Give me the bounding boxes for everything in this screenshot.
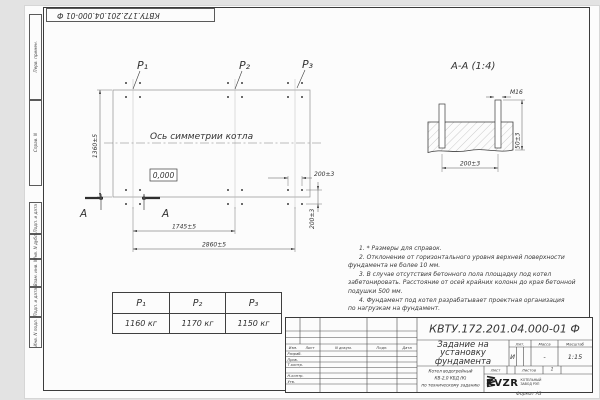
load-table-value: 1160 кг [113,313,169,333]
note-line: фундамента не более 10 мм. [348,262,590,271]
extension-lines [97,90,112,197]
load-table-header: P₂ [169,293,225,313]
drawing-sheet-page: Перв. примен. Справ. N Подп. и дата Инв.… [0,0,600,400]
section-letter-right: А [161,208,169,220]
load-table-header: P₁ [113,293,169,313]
col-header-doc: N докум. [335,346,352,350]
load-point-leaders [133,70,305,89]
p3-label: P₃ [302,58,314,71]
note-line: по нагрузкам на фундамент. [348,305,590,314]
logo-subtext: КОТЕЛЬНЫЙ ЗАВОД РЭП [520,379,541,387]
anchor-bolt-left [439,104,445,148]
dim-2860: 2860±5 [202,242,226,249]
col-header-list: Лист [305,346,314,350]
elevation-mark: 0,000 [153,171,175,180]
col-header-izm: Изм. [289,346,297,350]
load-table-value: 1170 кг [169,313,225,333]
sheets-label: Листов [522,368,536,373]
role-razrab: Разраб. [288,352,302,356]
anchor-bolt-right [495,100,501,148]
load-table-header: P₃ [225,293,281,313]
plan-view: P₁ P₂ P₃ Ось симметрии котла 0,000 1360±… [79,58,334,252]
axis-of-symmetry-label: Ось симметрии котла [150,132,253,142]
kvzr-spring-icon [486,375,496,388]
mass-value: - [543,353,545,361]
m16-label: M16 [510,89,523,96]
dim-1360: 1360±5 [92,134,99,158]
load-table: P₁ P₂ P₃ 1160 кг 1170 кг 1150 кг [112,292,282,334]
format-label: Формат А3 [516,392,542,397]
role-prov: Пров. [288,358,298,362]
role-tkontr: Т.контр. [288,363,304,367]
section-view-a-a: А-А (1:4) M16 50±3 200±3 [428,61,525,172]
sheets-value: 1 [551,368,554,373]
scale-value: 1:15 [568,353,583,361]
product-line: Котел водогрейный [429,369,473,374]
column-axis-lines [133,79,295,209]
anchor-bolt-dots [125,82,303,205]
note-line: 3. В случае отсутствия бетонного пола пл… [348,271,590,280]
logo-subtext-line: ЗАВОД РЭП [520,383,541,387]
note-line: 1. * Размеры для справок. [348,245,590,254]
product-line: по техническому заданию [421,383,479,388]
section-title: А-А (1:4) [450,61,495,72]
load-table-value: 1150 кг [225,313,281,333]
note-line: 2. Отклонение от горизонтального уровня … [348,254,590,263]
product-line: КВ-2,0 КБД (К) [434,376,466,381]
col-header-podp: Подп. [377,346,388,350]
foundation-outline [113,90,310,197]
sheet-label: Лист [491,368,501,373]
lit-label: Лит. [516,341,525,346]
title-block: КВТУ.172.201.04.000-01 Ф Изм. Лист N док… [285,317,593,393]
p2-label: P₂ [239,59,251,72]
note-line: 4. Фундамент под котел разрабатывает про… [348,297,590,306]
dim-1745: 1745±5 [172,224,196,231]
note-line: подушки 500 мм. [348,288,590,297]
dim-200-h: 200±3 [314,171,334,178]
scale-label: Масштаб [566,341,584,346]
role-utv: Утв. [288,380,296,384]
note-line: забетонировать. Расстояние от осей крайн… [348,279,590,288]
mass-label: Масса [538,341,550,346]
kvzr-logo: KVZR КОТЕЛЬНЫЙ ЗАВОД РЭП [486,375,590,391]
dim-200-section: 200±3 [460,161,480,168]
dim-200-v: 200±3 [309,209,316,229]
doc-number: КВТУ.172.201.04.000-01 Ф [429,323,580,336]
dim-50-section: 50±3 [515,132,522,149]
role-nkontr: Н.контр. [288,374,304,378]
notes-block: 1. * Размеры для справок. 2. Отклонение … [348,245,590,314]
title-line: фундамента [435,357,491,367]
col-header-data: Дата [402,346,411,350]
section-letter-left: А [79,208,87,220]
lit-value: И [510,353,515,361]
p1-label: P₁ [137,59,148,72]
